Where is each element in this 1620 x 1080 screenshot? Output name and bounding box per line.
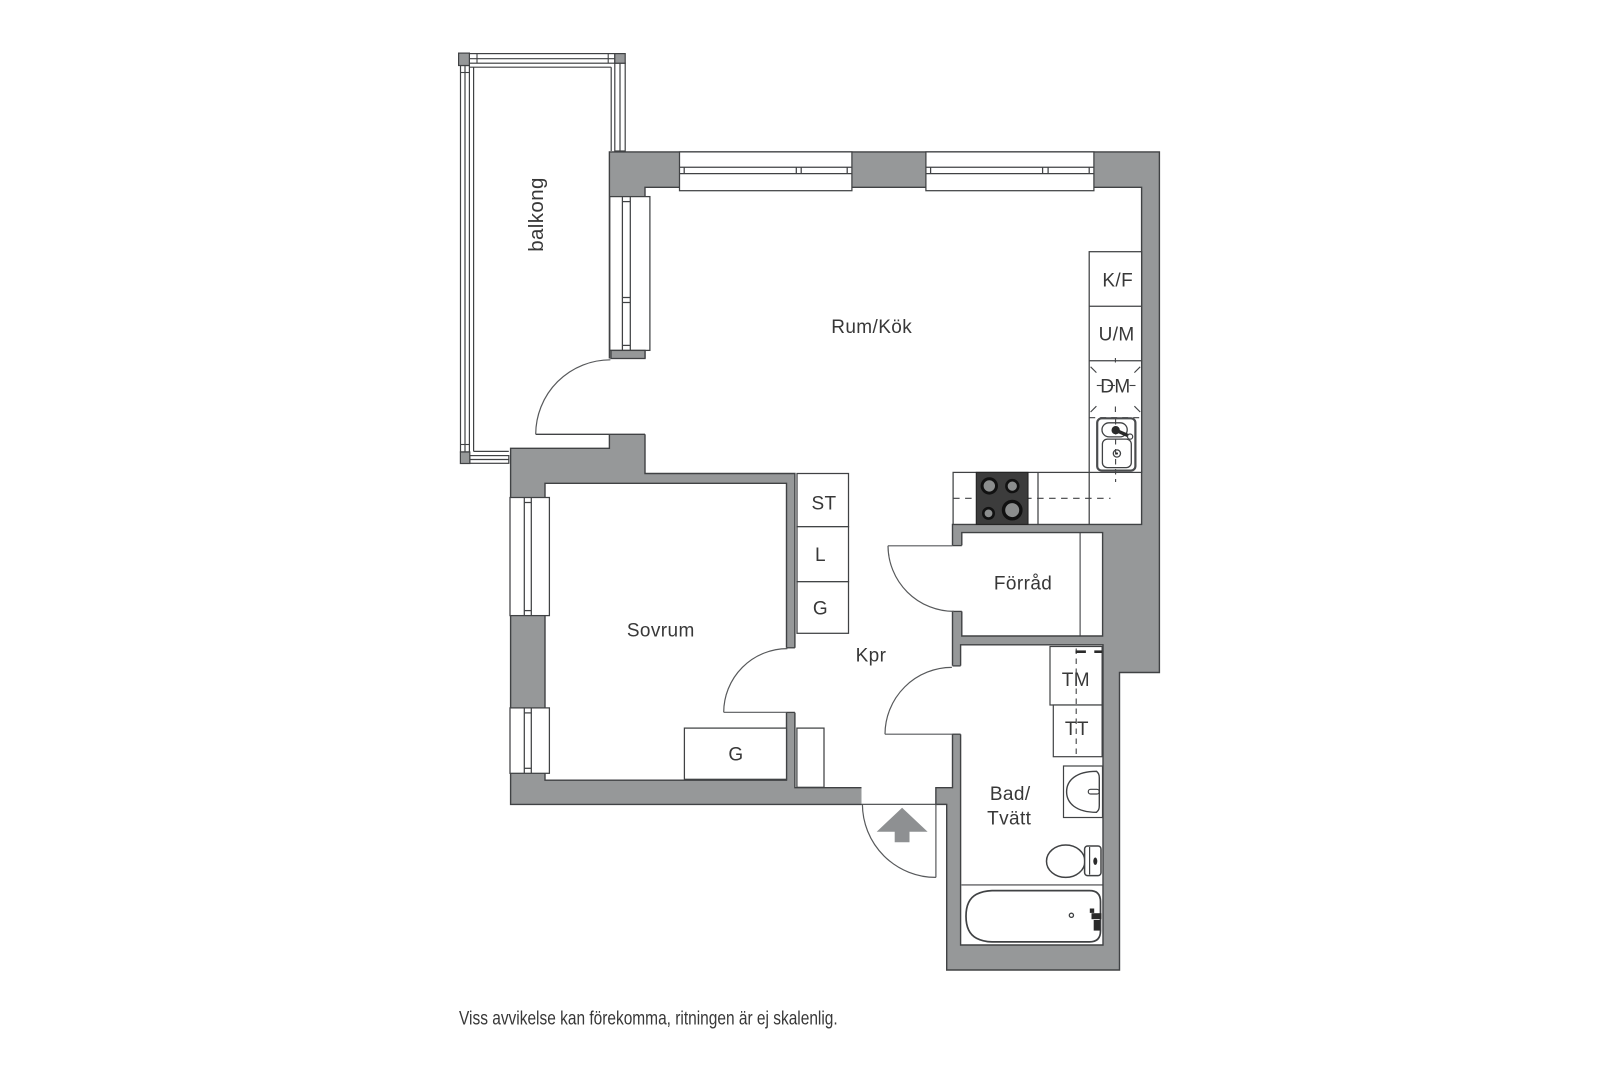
svg-text:Rum/Kök: Rum/Kök [831,317,912,338]
svg-text:G: G [813,598,828,619]
svg-text:ST: ST [811,493,836,514]
svg-text:Tvätt: Tvätt [987,809,1032,830]
svg-text:Viss avvikelse kan förekomma,: Viss avvikelse kan förekomma, ritningen … [459,1007,838,1029]
svg-text:L: L [815,545,826,566]
svg-text:TT: TT [1065,719,1089,740]
svg-text:G: G [728,745,743,766]
svg-text:DM: DM [1100,376,1130,397]
svg-text:U/M: U/M [1099,324,1135,345]
svg-text:Sovrum: Sovrum [627,620,695,641]
svg-text:Kpr: Kpr [856,645,887,666]
svg-text:TM: TM [1062,670,1090,691]
svg-text:K/F: K/F [1102,271,1133,292]
svg-text:Bad/: Bad/ [990,784,1031,805]
svg-text:Förråd: Förråd [994,573,1052,594]
svg-text:balkong: balkong [525,177,548,252]
